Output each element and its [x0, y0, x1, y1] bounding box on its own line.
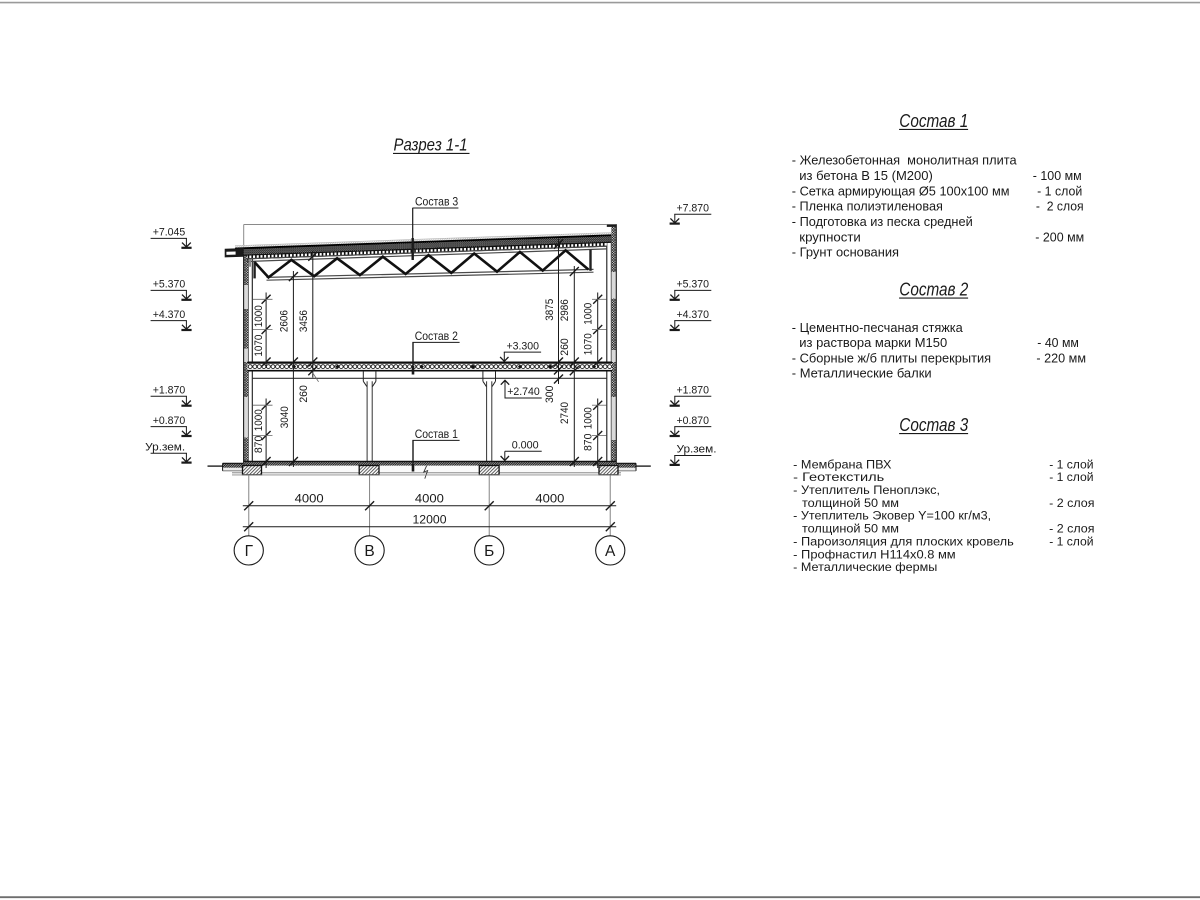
- svg-text:1000: 1000: [253, 305, 265, 327]
- svg-text:- Пленка полиэтиленовая: - Пленка полиэтиленовая: [792, 199, 943, 214]
- svg-text:Состав 2: Состав 2: [415, 330, 458, 343]
- svg-text:+3.300: +3.300: [507, 340, 540, 352]
- svg-text:- 2 слоя: - 2 слоя: [1049, 496, 1094, 510]
- svg-text:3456: 3456: [298, 310, 310, 332]
- svg-text:3875: 3875: [544, 299, 556, 321]
- svg-text:+0.870: +0.870: [153, 415, 186, 427]
- svg-text:4000: 4000: [535, 493, 564, 506]
- svg-text:- Металлические фермы: - Металлические фермы: [793, 560, 937, 574]
- svg-text:Б: Б: [484, 543, 494, 560]
- svg-text:Ур.зем.: Ур.зем.: [677, 444, 717, 456]
- svg-text:+7.870: +7.870: [677, 202, 710, 214]
- svg-text:- Грунт основания: - Грунт основания: [792, 245, 899, 260]
- svg-text:- 220 мм: - 220 мм: [1036, 350, 1086, 365]
- svg-text:4000: 4000: [295, 493, 324, 506]
- svg-text:- 2 слоя: - 2 слоя: [1036, 199, 1084, 214]
- svg-text:2986: 2986: [559, 299, 571, 321]
- svg-text:1070: 1070: [253, 335, 265, 357]
- svg-text:- 1 слой: - 1 слой: [1049, 470, 1093, 484]
- svg-text:870: 870: [253, 436, 265, 454]
- svg-text:2606: 2606: [279, 310, 291, 332]
- svg-text:- Сетка армирующая Ø5 100х100: - Сетка армирующая Ø5 100х100 мм: [792, 183, 1010, 198]
- svg-text:- 1 слой: - 1 слой: [1049, 534, 1093, 548]
- svg-text:Состав 3: Состав 3: [899, 415, 968, 435]
- svg-text:- Геотекстиль: - Геотекстиль: [793, 470, 884, 484]
- svg-text:260: 260: [559, 338, 571, 356]
- svg-text:из бетона В 15 (М200): из бетона В 15 (М200): [799, 168, 933, 183]
- svg-text:- Утеплитель Эковер Y=100 кг/м: - Утеплитель Эковер Y=100 кг/м3,: [793, 509, 991, 523]
- svg-text:- 200 мм: - 200 мм: [1035, 229, 1084, 244]
- svg-text:+5.370: +5.370: [677, 279, 710, 291]
- svg-text:4000: 4000: [415, 493, 444, 506]
- svg-text:Ур.зем.: Ур.зем.: [145, 441, 185, 453]
- svg-text:300: 300: [544, 386, 556, 404]
- svg-text:Состав 1: Состав 1: [415, 428, 458, 441]
- svg-text:+5.370: +5.370: [153, 279, 186, 291]
- svg-text:крупности: крупности: [799, 229, 861, 244]
- svg-text:12000: 12000: [413, 514, 447, 527]
- svg-text:+4.370: +4.370: [153, 309, 186, 321]
- svg-text:Разрез 1-1: Разрез 1-1: [394, 134, 468, 154]
- svg-text:1000: 1000: [583, 303, 595, 325]
- svg-text:- Металлические балки: - Металлические балки: [792, 366, 932, 381]
- svg-text:1000: 1000: [583, 407, 595, 429]
- svg-text:Г: Г: [245, 543, 254, 560]
- svg-text:- 1 слой: - 1 слой: [1037, 183, 1082, 198]
- svg-text:Состав 1: Состав 1: [899, 111, 968, 131]
- svg-text:В: В: [364, 543, 374, 560]
- svg-text:870: 870: [583, 434, 595, 452]
- svg-text:260: 260: [298, 385, 310, 403]
- svg-text:из раствора марки М150: из раствора марки М150: [799, 335, 947, 350]
- svg-text:+0.870: +0.870: [677, 415, 710, 427]
- svg-text:- Утеплитель Пеноплэкс,: - Утеплитель Пеноплэкс,: [793, 483, 940, 497]
- svg-text:+4.370: +4.370: [677, 309, 710, 321]
- svg-text:+1.870: +1.870: [153, 385, 186, 397]
- svg-text:1070: 1070: [583, 333, 595, 355]
- svg-text:- Цементно-песчаная стяжка: - Цементно-песчаная стяжка: [792, 320, 964, 335]
- svg-text:3040: 3040: [279, 406, 291, 428]
- svg-text:А: А: [605, 543, 616, 560]
- svg-text:+2.740: +2.740: [507, 386, 540, 398]
- svg-text:- Железобетонная монолитная п: - Железобетонная монолитная плита: [792, 153, 1018, 168]
- svg-text:0.000: 0.000: [512, 439, 539, 451]
- svg-text:+7.045: +7.045: [153, 227, 186, 239]
- svg-text:Состав 3: Состав 3: [415, 196, 458, 209]
- svg-text:Состав 2: Состав 2: [899, 280, 968, 300]
- svg-text:- 100 мм: - 100 мм: [1033, 168, 1082, 183]
- svg-text:+1.870: +1.870: [677, 385, 710, 397]
- svg-text:- Подготовка из песка средней: - Подготовка из песка средней: [792, 214, 973, 229]
- svg-text:- Пароизоляция для плоских кро: - Пароизоляция для плоских кровель: [793, 534, 1014, 548]
- svg-text:- 40 мм: - 40 мм: [1037, 335, 1079, 350]
- svg-text:- Сборные ж/б плиты перекрытия: - Сборные ж/б плиты перекрытия: [792, 350, 991, 365]
- svg-text:2740: 2740: [559, 402, 571, 424]
- svg-text:1000: 1000: [253, 409, 265, 431]
